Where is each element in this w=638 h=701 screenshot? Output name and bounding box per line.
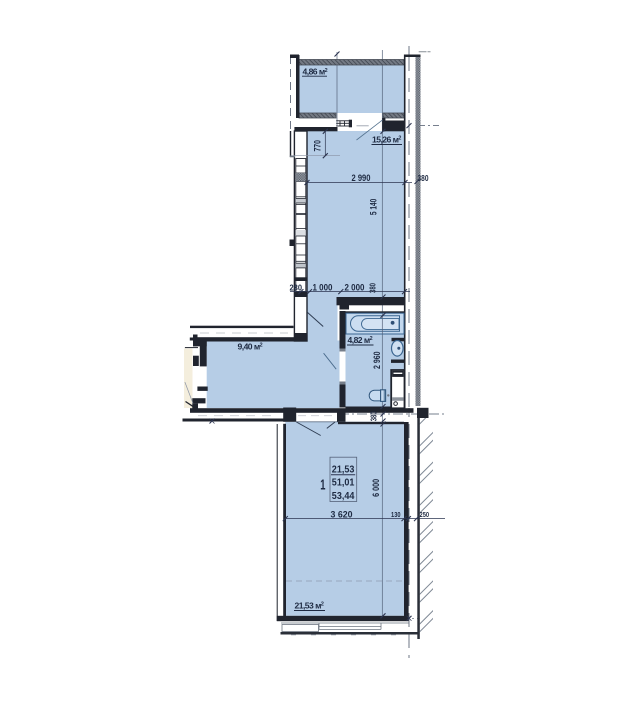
- svg-text:2 000: 2 000: [345, 282, 365, 292]
- svg-text:2 960: 2 960: [371, 351, 382, 369]
- svg-text:53,44: 53,44: [332, 491, 355, 502]
- svg-text:380: 380: [368, 283, 377, 293]
- svg-text:130: 130: [391, 510, 401, 519]
- svg-text:380: 380: [418, 174, 429, 183]
- svg-text:6 000: 6 000: [371, 479, 381, 497]
- svg-text:2 990: 2 990: [352, 173, 371, 183]
- svg-text:4,82 м2: 4,82 м2: [348, 335, 373, 345]
- svg-text:21,53 м2: 21,53 м2: [295, 601, 324, 611]
- svg-text:21,53: 21,53: [332, 464, 355, 475]
- svg-text:4,86 м2: 4,86 м2: [303, 67, 328, 77]
- svg-text:9,40 м2: 9,40 м2: [238, 342, 263, 352]
- svg-text:380: 380: [370, 411, 379, 421]
- svg-text:770: 770: [312, 140, 322, 152]
- svg-text:51,01: 51,01: [332, 478, 355, 489]
- svg-text:1 000: 1 000: [313, 282, 333, 292]
- svg-text:1: 1: [320, 477, 325, 493]
- svg-text:280: 280: [290, 282, 303, 292]
- svg-text:5 140: 5 140: [368, 199, 378, 216]
- svg-text:15,26 м2: 15,26 м2: [372, 135, 401, 145]
- svg-text:3 620: 3 620: [331, 509, 353, 519]
- svg-text:250: 250: [420, 510, 430, 519]
